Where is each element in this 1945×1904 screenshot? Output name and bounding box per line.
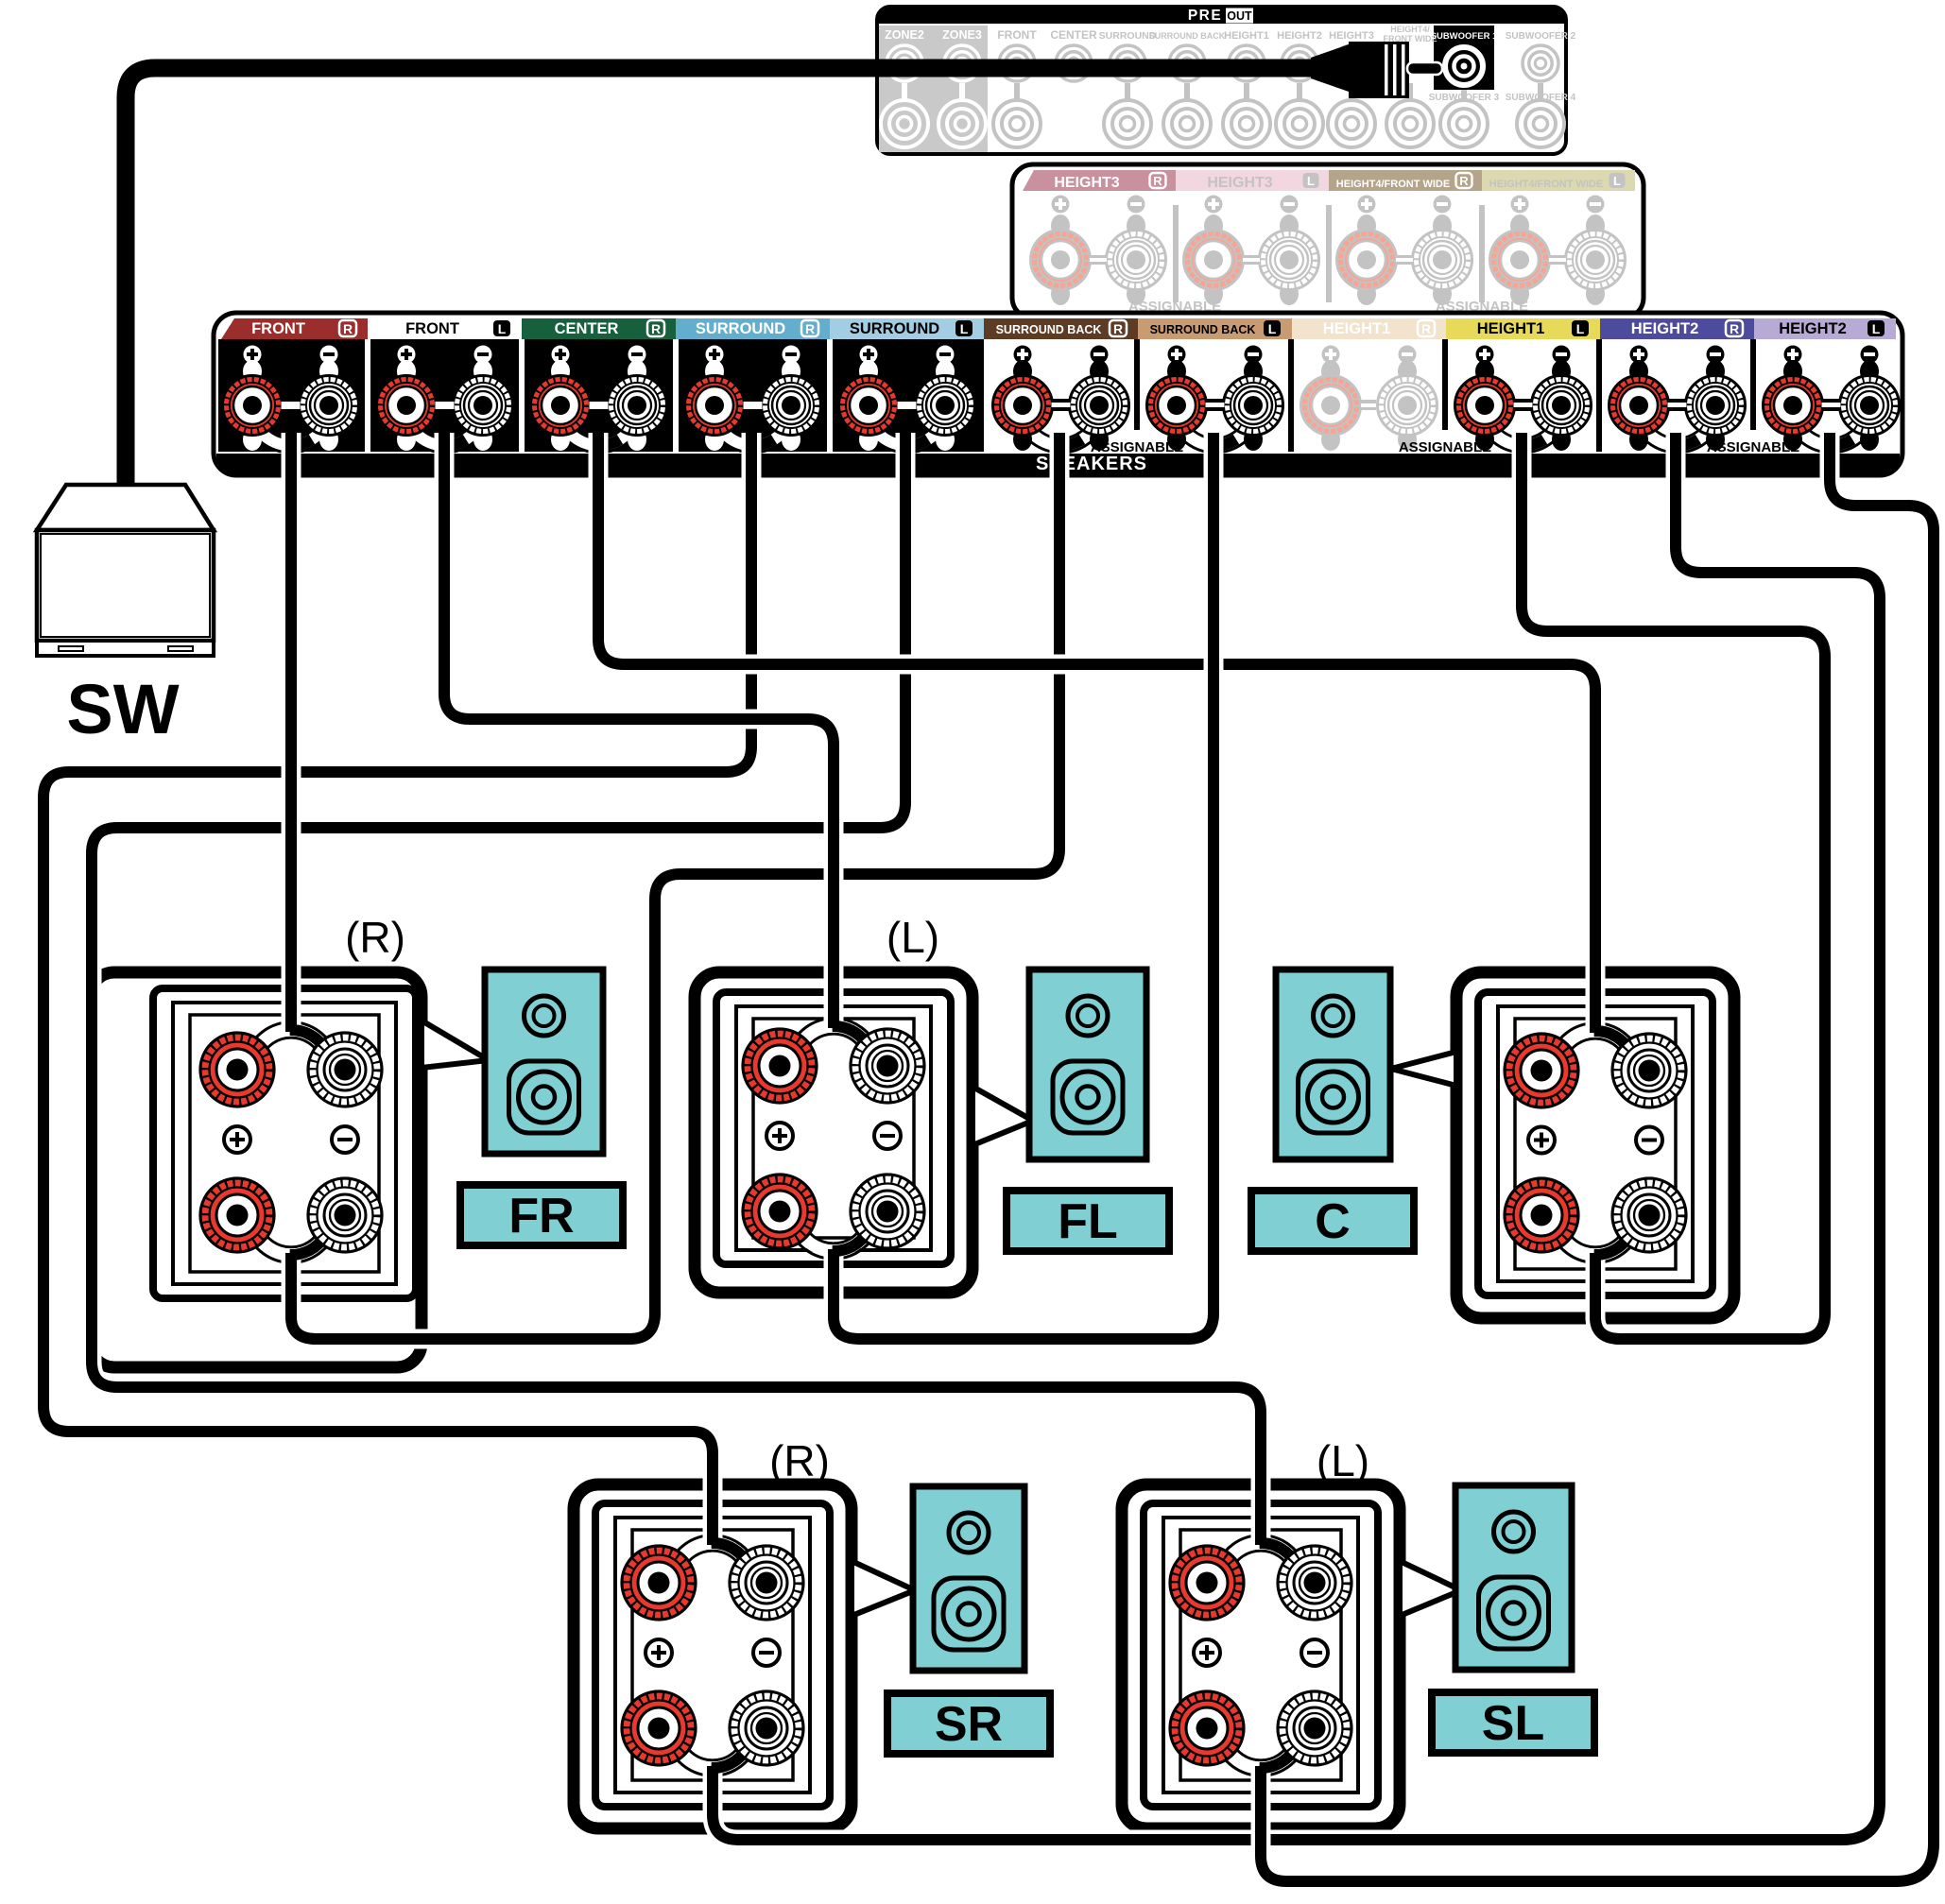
svg-text:FRONT: FRONT — [405, 320, 459, 337]
svg-text:HEIGHT2: HEIGHT2 — [1277, 30, 1322, 42]
svg-text:HEIGHT4/FRONT WIDE: HEIGHT4/FRONT WIDE — [1489, 179, 1603, 190]
svg-text:L: L — [1576, 321, 1585, 336]
svg-text:L: L — [1872, 321, 1881, 336]
svg-text:SURROUND BACK: SURROUND BACK — [1150, 323, 1256, 336]
svg-text:(L): (L) — [1317, 1436, 1369, 1485]
svg-text:FR: FR — [508, 1189, 574, 1244]
svg-text:R: R — [1730, 321, 1739, 336]
svg-text:(L): (L) — [886, 913, 939, 962]
svg-text:CENTER: CENTER — [555, 320, 619, 337]
svg-text:R: R — [805, 321, 815, 336]
svg-text:HEIGHT1: HEIGHT1 — [1323, 320, 1391, 337]
svg-text:R: R — [1113, 321, 1123, 336]
svg-text:HEIGHT4/FRONT WIDE: HEIGHT4/FRONT WIDE — [1336, 179, 1450, 190]
svg-text:L: L — [1307, 174, 1315, 188]
svg-text:PRE: PRE — [1188, 8, 1222, 24]
svg-text:R: R — [651, 321, 661, 336]
svg-text:R: R — [1153, 174, 1162, 188]
svg-text:L: L — [498, 321, 507, 336]
svg-text:ZONE3: ZONE3 — [942, 28, 982, 42]
svg-text:SURROUND BACK: SURROUND BACK — [996, 323, 1102, 336]
svg-text:SUBWOOFER 2: SUBWOOFER 2 — [1506, 31, 1576, 42]
svg-text:R: R — [343, 321, 353, 336]
svg-text:HEIGHT1: HEIGHT1 — [1477, 320, 1545, 337]
svg-text:HEIGHT1: HEIGHT1 — [1224, 30, 1269, 42]
svg-text:ASSIGNABLE: ASSIGNABLE — [1707, 439, 1799, 455]
svg-text:SR: SR — [935, 1697, 1003, 1752]
svg-text:SURROUND: SURROUND — [696, 320, 785, 337]
svg-text:ASSIGNABLE: ASSIGNABLE — [1399, 439, 1491, 455]
svg-text:HEIGHT2: HEIGHT2 — [1631, 320, 1699, 337]
svg-text:L: L — [960, 321, 969, 336]
svg-text:HEIGHT3: HEIGHT3 — [1207, 175, 1272, 191]
svg-text:HEIGHT4/: HEIGHT4/ — [1390, 25, 1430, 34]
svg-text:FL: FL — [1058, 1194, 1118, 1249]
svg-text:FRONT: FRONT — [997, 28, 1037, 42]
svg-text:C: C — [1315, 1194, 1351, 1249]
svg-text:SL: SL — [1482, 1696, 1544, 1751]
svg-text:ZONE2: ZONE2 — [885, 28, 924, 42]
svg-text:SURROUND BACK: SURROUND BACK — [1149, 31, 1226, 41]
svg-text:HEIGHT3: HEIGHT3 — [1054, 175, 1119, 191]
svg-text:CENTER: CENTER — [1050, 28, 1097, 42]
svg-text:L: L — [1268, 321, 1277, 336]
svg-text:R: R — [1459, 174, 1469, 188]
svg-text:OUT: OUT — [1227, 9, 1252, 23]
svg-text:SURROUND: SURROUND — [1099, 30, 1157, 42]
svg-text:(R): (R) — [769, 1436, 830, 1485]
svg-text:L: L — [1613, 174, 1621, 188]
svg-text:FRONT: FRONT — [251, 320, 305, 337]
svg-text:HEIGHT3: HEIGHT3 — [1329, 30, 1374, 42]
svg-text:SURROUND: SURROUND — [850, 320, 939, 337]
svg-text:HEIGHT2: HEIGHT2 — [1779, 320, 1847, 337]
svg-text:(R): (R) — [345, 913, 405, 962]
svg-text:R: R — [1421, 321, 1431, 336]
svg-text:SUBWOOFER 1: SUBWOOFER 1 — [1431, 31, 1498, 42]
svg-text:SW: SW — [66, 670, 179, 748]
